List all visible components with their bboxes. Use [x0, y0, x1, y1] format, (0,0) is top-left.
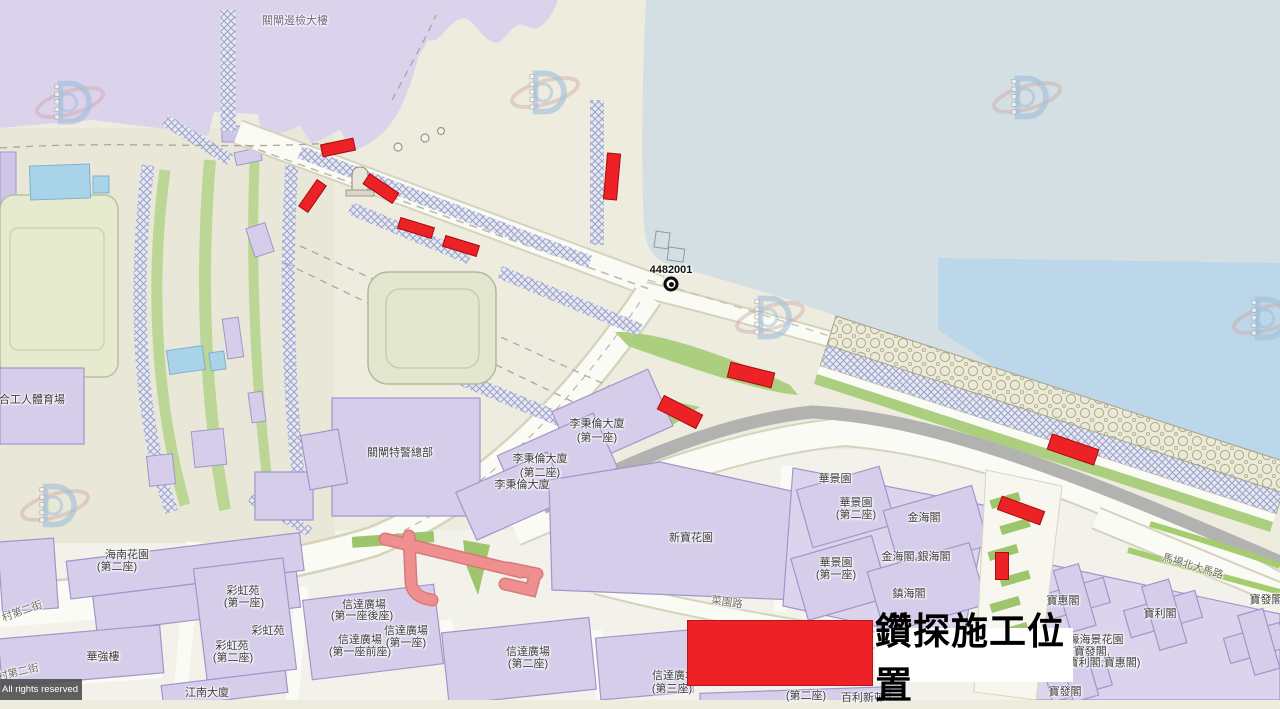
map-label: 寶發閣 [1250, 591, 1280, 607]
map-label: 關閘特警總部 [367, 444, 433, 460]
map-label: (第一座後座) [331, 607, 393, 623]
map-label: (第二座) [213, 649, 253, 665]
map-label: 關閘邊檢大樓 [262, 12, 328, 28]
map-label: 金海閣 [908, 509, 941, 525]
map-label: 合工人體育場 [0, 391, 65, 407]
map-label: 寶利閣,寶惠閣) [1068, 654, 1141, 670]
legend-label-box: 鑽探施工位置 [875, 628, 1073, 682]
map-label: 新寶花園 [669, 529, 713, 545]
map-label: 4482001 [650, 264, 693, 276]
map-screenshot: { "map": { "area": "Portas do Cerco / bo… [0, 0, 1280, 700]
map-label: (第二座) [508, 655, 548, 671]
map-label: 李秉倫大廈 [495, 476, 550, 492]
copyright-watermark: All rights reserved [0, 679, 82, 700]
map-label: (第一座) [224, 594, 264, 610]
map-label: 華景園 [819, 470, 852, 486]
map-label: 華強樓 [87, 648, 120, 664]
map-label: 江南大廈 [185, 684, 229, 700]
map-label: (第二座) [786, 687, 826, 703]
map-label: 金海閣,銀海閣 [881, 548, 950, 564]
map-label: 馬場北大馬路 [1161, 550, 1226, 583]
map-label: 村第二街 [0, 597, 44, 625]
labels-layer: 關閘邊檢大樓4482001合工人體育場關閘特警總部李秉倫大廈(第一座)李秉倫大廈… [0, 0, 1280, 700]
map-label: 彩虹苑 [252, 622, 285, 638]
map-label: 鎮海閣 [893, 585, 926, 601]
marker-dot [669, 282, 674, 287]
map-label: 菜園路 [710, 592, 743, 612]
legend-drill-swatch [687, 620, 873, 686]
map-label: (第二座) [836, 506, 876, 522]
map-label: (第一座) [386, 634, 426, 650]
map-label: (第一座) [816, 566, 856, 582]
map-label: (第一座前座) [329, 643, 391, 659]
survey-point-marker [664, 277, 679, 292]
legend-label: 鑽探施工位置 [875, 601, 1073, 709]
map-label: (第一座) [577, 429, 617, 445]
map-label: 寶利閣 [1144, 605, 1177, 621]
map-label: (第二座) [97, 558, 137, 574]
